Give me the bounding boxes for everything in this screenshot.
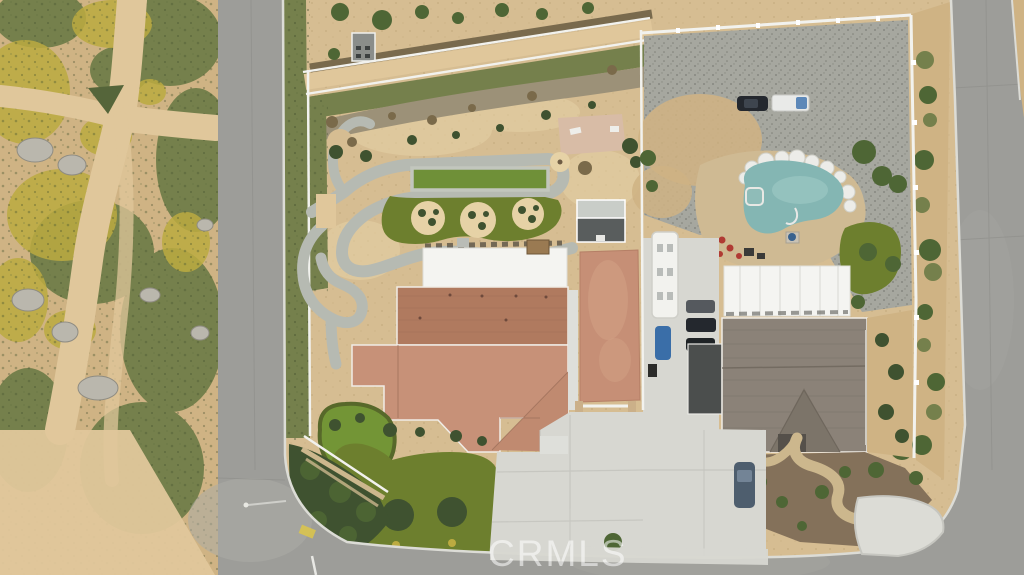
- property-block: [283, 0, 973, 575]
- right-property: [632, 2, 950, 575]
- parked-car-blue: [655, 326, 671, 360]
- garden-shed: [577, 200, 625, 242]
- gate-pad: [316, 194, 336, 228]
- rear-shed: [352, 33, 375, 61]
- aerial-photo-canvas: CRMLS: [0, 0, 1024, 575]
- rv-pad: [580, 250, 640, 402]
- pergola: [527, 240, 549, 254]
- bocce-court: [412, 168, 548, 190]
- crmls-watermark: CRMLS: [488, 533, 688, 575]
- dark-roof-building: [688, 344, 722, 414]
- fire-pit: [786, 232, 799, 243]
- patio-pad: [558, 114, 626, 155]
- aerial-photo: [0, 0, 1024, 575]
- pool-spa: [746, 188, 763, 205]
- side-walk-strip: [568, 290, 578, 410]
- undeveloped-lot: [0, 0, 236, 575]
- driveway-car: [734, 462, 755, 508]
- parked-rv: [652, 232, 678, 318]
- pickup-truck: [772, 95, 809, 111]
- parked-car-gravel: [737, 96, 768, 111]
- workshop-roof: [724, 266, 850, 316]
